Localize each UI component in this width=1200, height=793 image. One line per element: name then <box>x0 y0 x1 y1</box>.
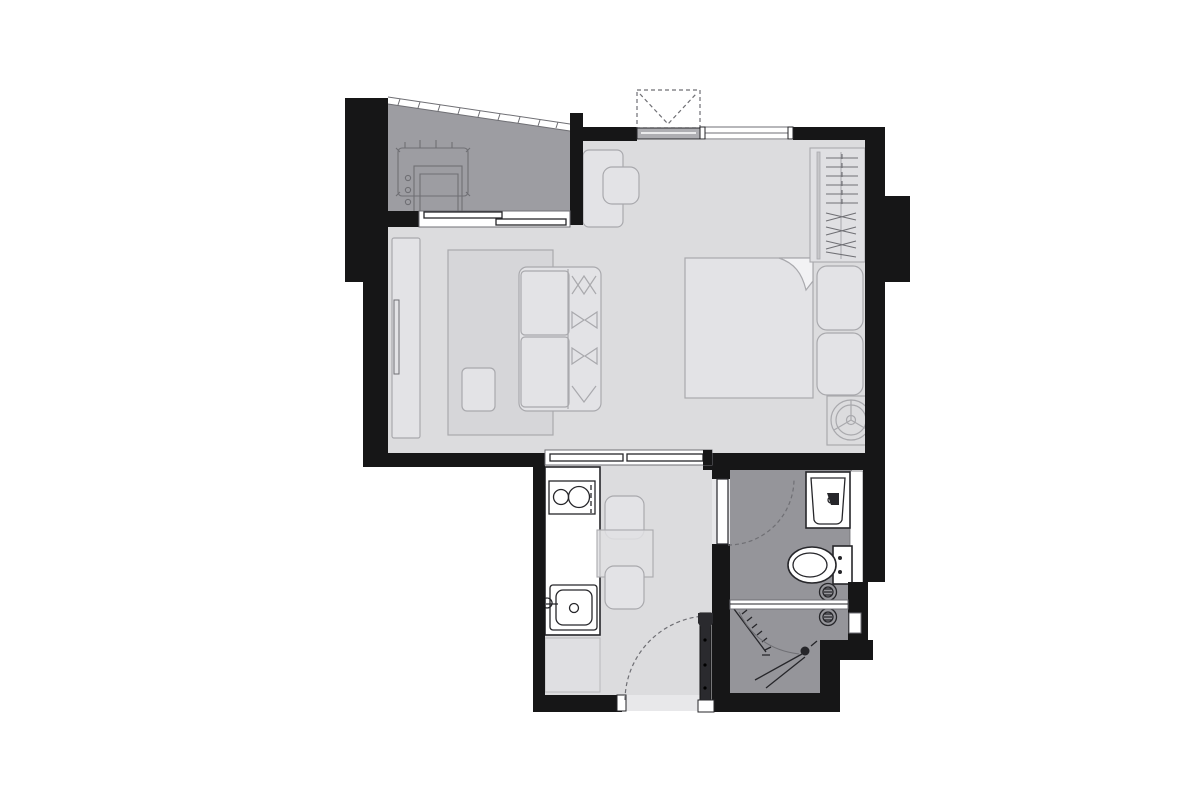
door-hinge-dot <box>703 638 706 641</box>
flush-button <box>838 570 842 574</box>
wall-right-pillar <box>885 196 910 282</box>
entrance-threshold <box>622 695 700 711</box>
sofa <box>519 267 601 411</box>
wardrobe-rail <box>817 152 820 259</box>
wall-balcony-left <box>345 98 388 282</box>
door-hinge-dot <box>703 686 706 689</box>
wall-top-right <box>793 127 885 140</box>
tv-console <box>392 238 420 438</box>
toilet-icon <box>788 547 836 583</box>
wall-bath-left-stub <box>712 470 730 479</box>
wall-left-lower <box>363 282 388 467</box>
opening-end-cap <box>703 450 712 465</box>
wardrobe <box>810 148 865 262</box>
floor-plan-canvas <box>0 0 1200 793</box>
wall-living-bottom <box>363 453 545 467</box>
pillow <box>817 333 863 395</box>
living-kitchen-opening <box>545 450 712 465</box>
shower-partition <box>730 600 848 609</box>
ac-unit-v-symbol <box>640 94 696 124</box>
balcony-sliding-door <box>419 211 570 227</box>
ac-outdoor-unit-icon <box>637 90 700 128</box>
bed <box>685 258 863 398</box>
wall-top-stub <box>583 127 637 141</box>
door-hinge-jamb <box>698 700 714 712</box>
ac-ledge <box>637 90 700 139</box>
desk-chair <box>603 167 639 204</box>
window-jamb <box>788 127 793 139</box>
wall-bath-right-upper <box>863 470 885 582</box>
wall-bath-left-lower <box>712 544 730 710</box>
ottoman <box>462 368 495 411</box>
opening-band <box>545 450 712 465</box>
wall-shower-bottom <box>712 693 840 712</box>
toilet <box>788 546 852 584</box>
door-hinge-dot <box>703 663 706 666</box>
sofa-body <box>519 267 601 411</box>
floor-plan-drawing <box>0 0 1200 793</box>
wall-niche <box>849 613 861 633</box>
bedroom-window <box>700 127 793 139</box>
window-jamb <box>700 127 705 139</box>
wall-bathroom-top <box>703 453 885 470</box>
wall-kitchen-left <box>533 467 545 712</box>
dining-chair <box>605 566 644 609</box>
bed-mattress <box>685 258 813 398</box>
flush-button <box>838 556 842 560</box>
wall-right <box>865 140 885 473</box>
wall-step-horizontal <box>820 640 873 660</box>
floor-mat <box>545 638 600 692</box>
wall-entrance-left <box>533 695 622 712</box>
door-leaf <box>717 479 728 544</box>
washbasin <box>806 472 850 528</box>
pillow <box>817 266 863 330</box>
wall-balcony-door-stub <box>388 211 419 227</box>
wall-balcony-right <box>570 113 583 225</box>
